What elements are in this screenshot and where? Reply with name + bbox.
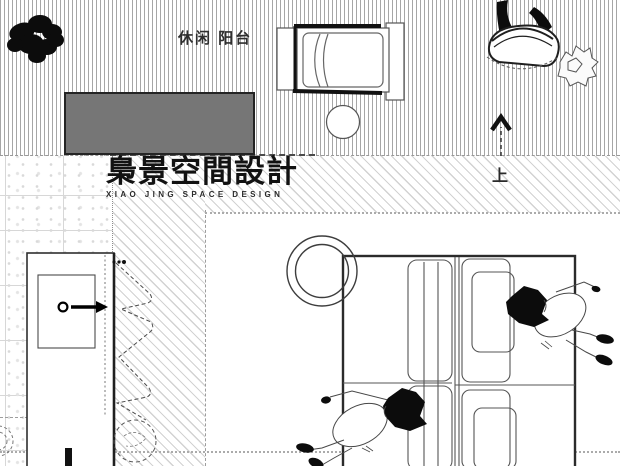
lounge-chair-icon (277, 23, 404, 100)
hanging-chair-icon (487, 0, 559, 69)
stair-up-arrow-icon (492, 117, 510, 156)
round-side-table-icon (327, 106, 360, 139)
curtain-hook-dots (112, 260, 126, 264)
potted-plant-icon (7, 15, 64, 63)
plan-linework (0, 0, 620, 466)
cabinet-icon (27, 253, 114, 466)
dashed-planter-icon (114, 420, 156, 462)
curtain-icon (116, 263, 153, 420)
shrub-icon (558, 46, 598, 86)
corner-dashed-arcs (0, 426, 13, 456)
floor-plan-canvas: 休闲 阳台 上 梟景空間設計 XIAO JING SPACE DESIGN (0, 0, 620, 466)
dashed-planter-inner (124, 432, 146, 446)
